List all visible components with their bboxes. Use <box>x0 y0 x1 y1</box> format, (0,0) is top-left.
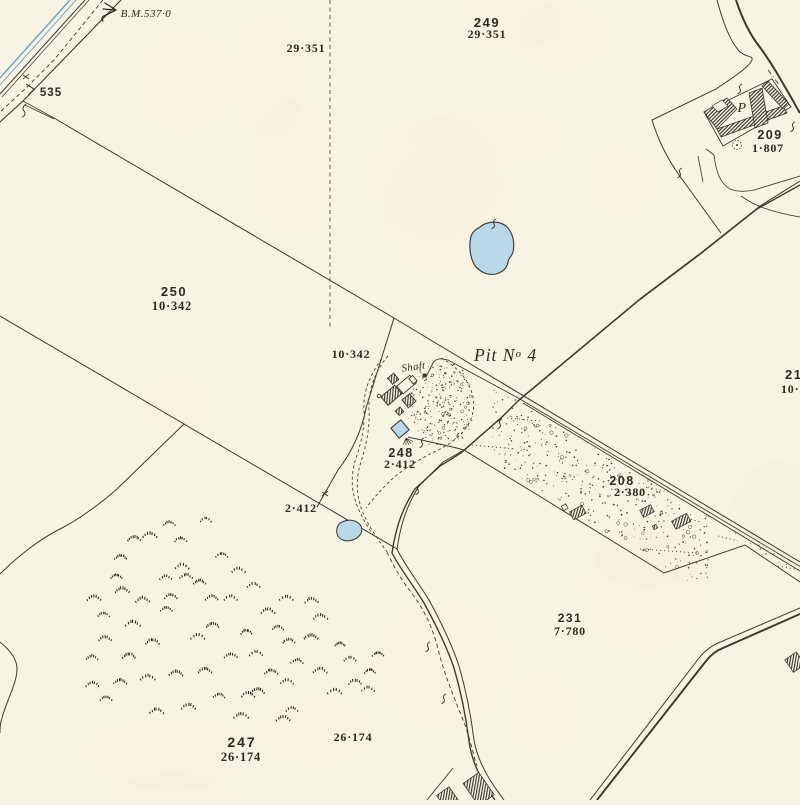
svg-text:2·412: 2·412 <box>384 457 416 471</box>
svg-text:250: 250 <box>161 284 187 299</box>
svg-text:10·342: 10·342 <box>332 347 371 361</box>
svg-text:10·342: 10·342 <box>152 299 192 313</box>
svg-text:7·780: 7·780 <box>554 624 586 638</box>
svg-text:247: 247 <box>227 734 256 750</box>
svg-text:26·174: 26·174 <box>221 750 261 764</box>
svg-text:26·174: 26·174 <box>334 730 373 744</box>
svg-text:10·7: 10·7 <box>781 382 800 396</box>
svg-text:29·351: 29·351 <box>468 27 507 41</box>
svg-text:209: 209 <box>757 128 782 142</box>
svg-text:2·380: 2·380 <box>614 485 646 499</box>
svg-text:B.M.537·0: B.M.537·0 <box>121 8 172 20</box>
svg-text:231: 231 <box>558 611 583 625</box>
svg-text:29·351: 29·351 <box>287 41 326 55</box>
svg-text:535: 535 <box>40 87 62 99</box>
svg-text:210: 210 <box>785 367 800 382</box>
svg-text:1·807: 1·807 <box>752 141 784 155</box>
svg-text:P: P <box>736 101 746 116</box>
svg-text:Pit No 4: Pit No 4 <box>473 345 537 365</box>
svg-text:2·412: 2·412 <box>285 501 317 515</box>
